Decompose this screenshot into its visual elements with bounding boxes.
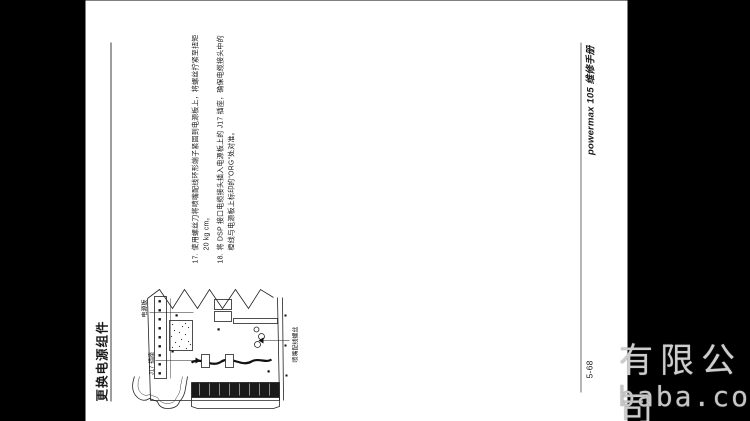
power-supply-figure: 电源板 J17 插座 喷嘴配线螺丝 <box>127 261 307 416</box>
watermark-url-text: baba.com <box>618 380 750 413</box>
step-17: 17. 使用螺丝刀将喷嘴配线环形端子紧固到电源板上，将螺丝拧紧至扭矩 20 kg… <box>191 27 212 263</box>
long-bar <box>233 318 277 323</box>
step-text-line: 20 kg cm。 <box>203 213 210 250</box>
step-text-line: 将 DSP 接口电缆接头插入电源板上的 J17 插座，确保电缆接头中的 <box>217 35 224 250</box>
page-number: 5-68 <box>584 360 594 378</box>
footer-rule <box>580 42 581 392</box>
base-feet <box>191 397 279 408</box>
section-title: 更换电源组件 <box>91 320 110 401</box>
screw-head <box>254 327 259 332</box>
base-hatched-rail <box>191 382 279 397</box>
manual-page: 更换电源组件 17. 使用螺丝刀将喷嘴配线环形端子紧固到电源板上，将螺丝拧紧至扭… <box>85 0 627 421</box>
manual-title: powermax 105 维修手册 <box>582 45 596 155</box>
power-board-label: 电源板 <box>140 299 148 317</box>
screen: 更换电源组件 17. 使用螺丝刀将喷嘴配线环形端子紧固到电源板上，将螺丝拧紧至扭… <box>0 0 750 421</box>
step-text-line: 使用螺丝刀将喷嘴配线环形端子紧固到电源板上，将螺丝拧紧至扭矩 <box>192 34 199 250</box>
power-supply-drawing: 电源板 J17 插座 喷嘴配线螺丝 <box>127 261 307 416</box>
step-18: 18. 将 DSP 接口电缆接头插入电源板上的 J17 插座，确保电缆接头中的 … <box>216 27 237 263</box>
procedure-steps: 17. 使用螺丝刀将喷嘴配线环形端子紧固到电源板上，将螺丝拧紧至扭矩 20 kg… <box>191 27 241 263</box>
j17-connector <box>201 354 209 367</box>
screw-dots <box>158 300 287 376</box>
component-block <box>214 311 231 321</box>
screw-head <box>254 341 260 347</box>
torn-edge-zigzag <box>147 289 273 308</box>
connector <box>225 354 233 367</box>
step-text-line: 橙线与电源板上标印的“ORG”处对准。 <box>228 128 235 250</box>
j17-label: J17 插座 <box>147 351 155 374</box>
nozzle-wire-screw-label: 喷嘴配线螺丝 <box>291 326 299 362</box>
header-rule <box>110 42 111 401</box>
